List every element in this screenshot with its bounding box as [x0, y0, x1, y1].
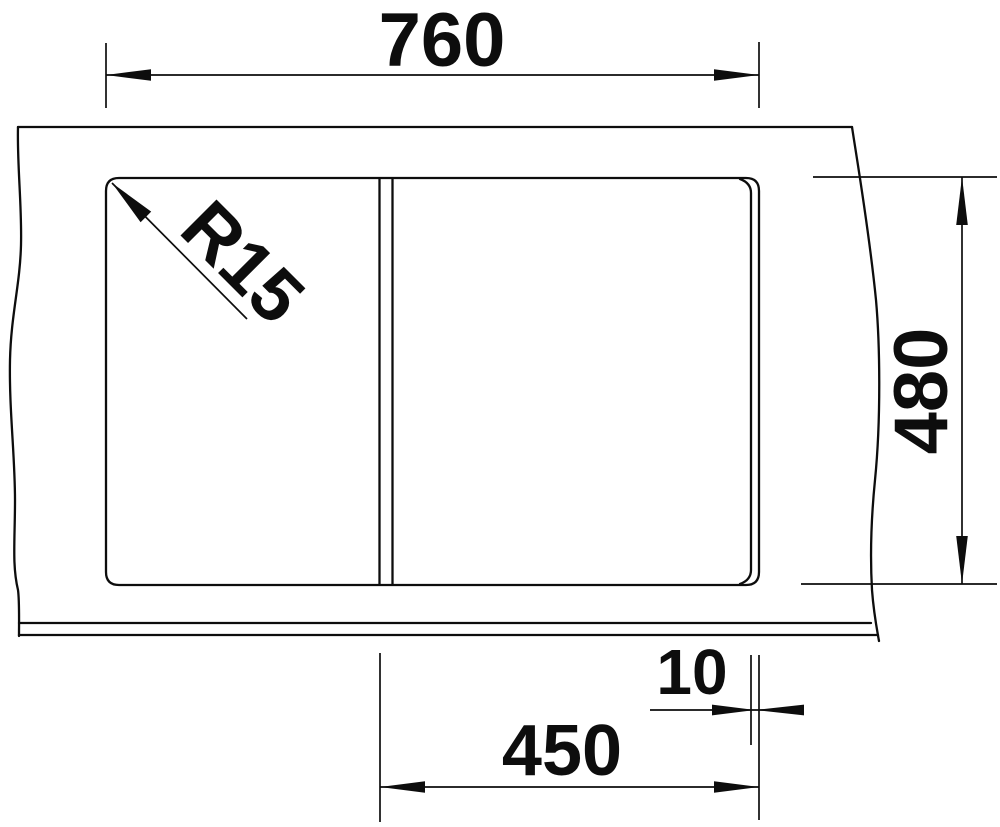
dimension-overall-depth: 480: [801, 177, 997, 584]
dim-depth-label: 480: [879, 328, 964, 455]
dim-depth-arrow-bottom: [956, 536, 968, 584]
sink-technical-drawing: 760 480 R15 10: [0, 0, 1000, 827]
dim-width-label: 760: [379, 0, 506, 83]
bowl-width-arrow-left: [380, 781, 425, 793]
dim-width-arrow-left: [106, 69, 151, 81]
drawing-canvas: 760 480 R15 10: [0, 0, 1000, 827]
radius-label: R15: [166, 185, 321, 340]
radius-arrowhead: [112, 183, 151, 222]
bowl-width-arrow-right: [714, 781, 759, 793]
dimension-overall-width: 760: [106, 0, 759, 108]
dimension-rim-offset: 10: [650, 636, 804, 820]
basin-rim-inner-line: [740, 179, 751, 584]
dim-width-arrow-right: [714, 69, 759, 81]
dim-depth-arrow-top: [956, 177, 968, 225]
countertop-right-break-line: [852, 127, 879, 641]
rim-offset-label: 10: [656, 636, 727, 708]
countertop-left-break-line: [10, 127, 21, 636]
dimension-corner-radius: R15: [112, 183, 320, 339]
rim-offset-arrow-right: [755, 705, 804, 716]
bowl-width-label: 450: [502, 711, 622, 791]
